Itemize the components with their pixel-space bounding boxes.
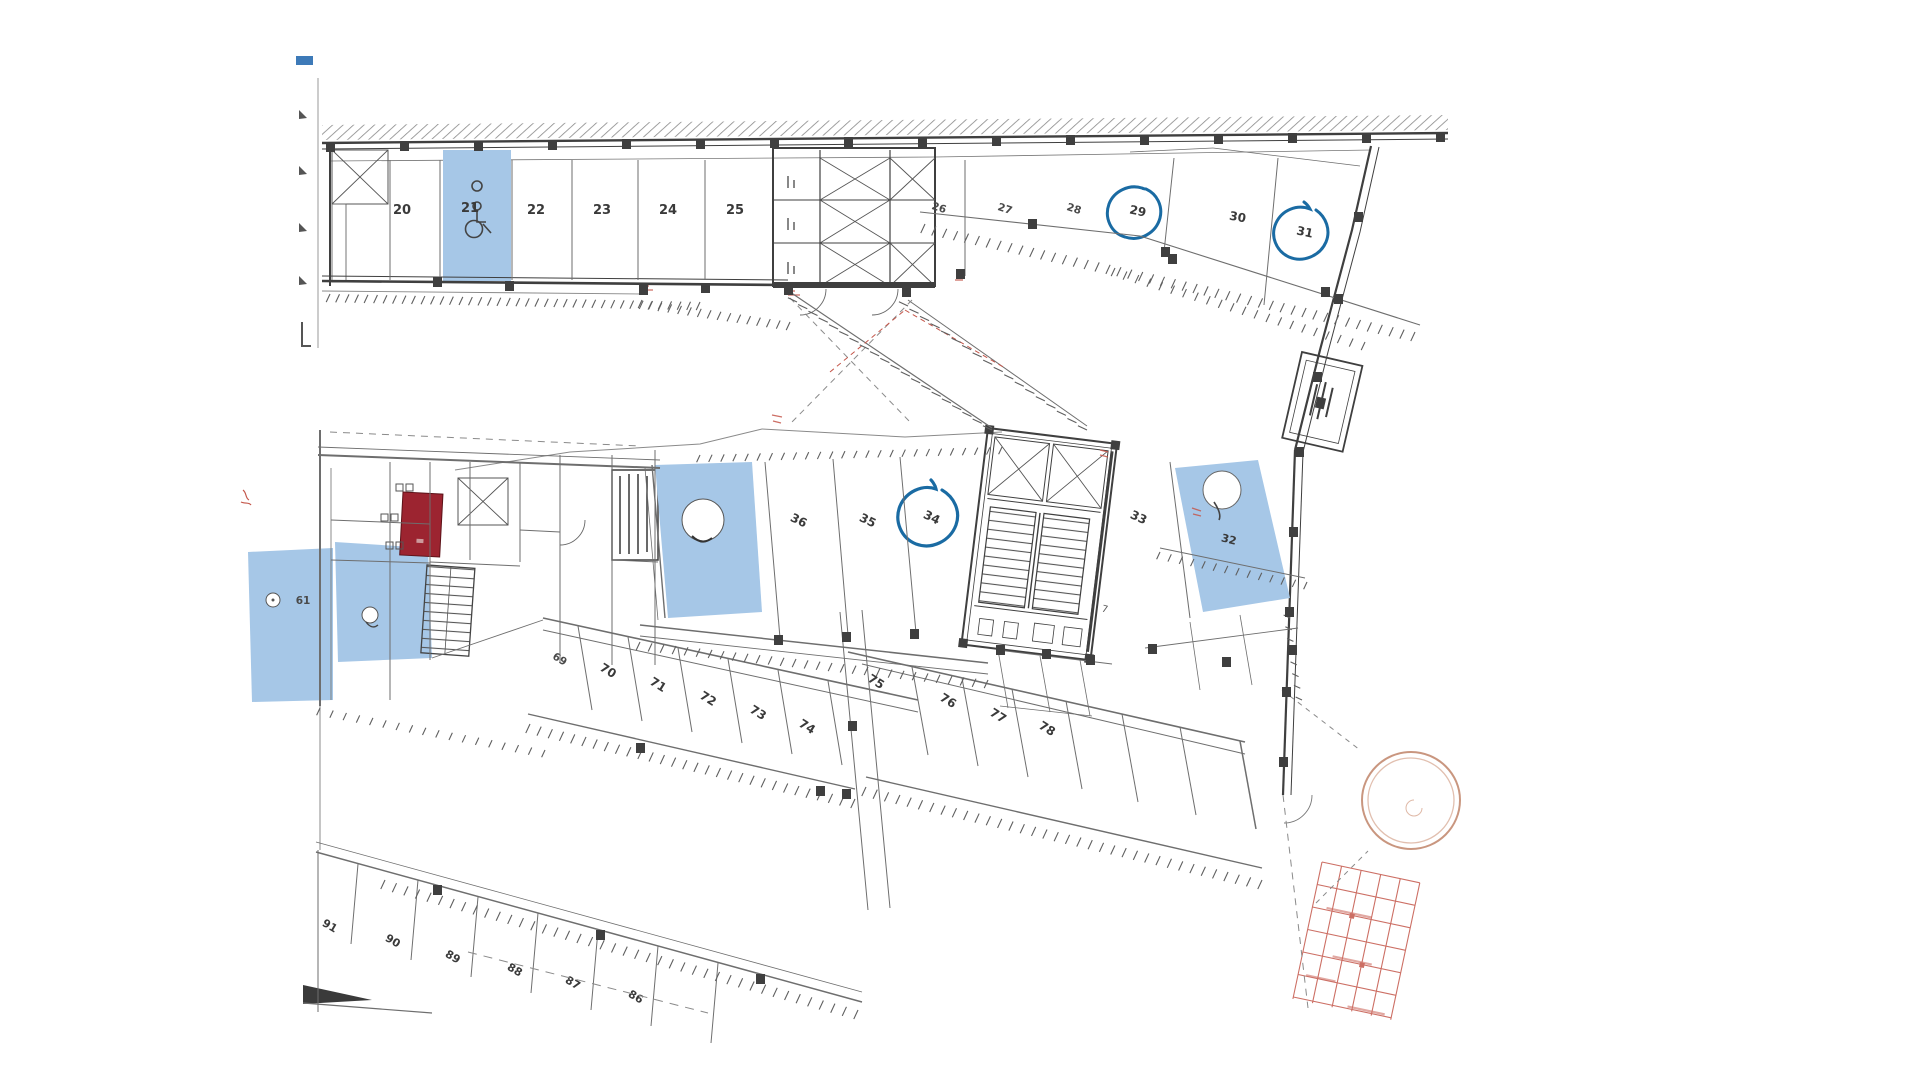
space-label-35: 35 xyxy=(857,510,878,530)
space-label-76: 76 xyxy=(937,690,959,711)
scanned-floor-plan-page: 20 21 22 23 24 25 xyxy=(0,0,1920,1080)
space-label-28: 28 xyxy=(1065,201,1083,217)
floor-plan-drawing: 20 21 22 23 24 25 xyxy=(0,0,1920,1080)
red-highlight-room xyxy=(400,492,443,557)
space-label-21: 21 xyxy=(461,201,479,216)
space-label-36: 36 xyxy=(788,510,809,530)
scan-artifacts xyxy=(296,56,318,348)
door-swing-arc xyxy=(560,520,585,545)
space-label-88: 88 xyxy=(505,961,525,980)
space-label-74: 74 xyxy=(796,716,818,737)
space-label-72: 72 xyxy=(697,688,719,709)
space-label-89: 89 xyxy=(443,948,463,967)
bays-33-32: 33 32 xyxy=(1128,460,1290,612)
space-label-73: 73 xyxy=(747,702,769,723)
fixture-symbol xyxy=(1203,471,1241,509)
left-utility-block: 61 xyxy=(241,470,658,702)
hatched-roof-band xyxy=(322,115,1448,140)
duct-shaft xyxy=(612,470,658,560)
space-label-91: 91 xyxy=(320,917,340,936)
red-site-elements xyxy=(1284,752,1460,1020)
ramp-wedge xyxy=(303,985,372,1004)
space-label-25: 25 xyxy=(726,203,744,218)
lower-left-row: 69 70 71 72 73 74 xyxy=(550,650,818,736)
central-stair-core xyxy=(958,425,1120,664)
margin-tick-marks xyxy=(299,110,307,285)
dashed-layout-lines xyxy=(330,298,1368,1013)
space-label-24: 24 xyxy=(659,203,677,218)
bottom-left-row: 91 90 89 88 87 86 xyxy=(303,917,646,1007)
space-label-23: 23 xyxy=(593,203,611,218)
small-room-label: 7 xyxy=(1100,603,1109,615)
blue-area-61 xyxy=(335,542,432,662)
space-label-29: 29 xyxy=(1128,203,1147,220)
door-swing-arc xyxy=(1284,795,1312,823)
margin-corner-mark xyxy=(302,322,311,346)
space-label-87: 87 xyxy=(563,974,583,993)
space-label-20: 20 xyxy=(393,203,411,218)
upper-right-bays: 26 27 28 29 30 31 xyxy=(930,146,1379,795)
space-label-86: 86 xyxy=(626,988,646,1007)
center-bays: 36 35 34 xyxy=(455,429,1002,618)
space-label-34: 34 xyxy=(921,507,942,527)
space-label-30: 30 xyxy=(1228,209,1247,226)
door-swing-arc xyxy=(872,289,898,315)
slanted-right-wall xyxy=(1295,146,1371,450)
space-label-31: 31 xyxy=(1295,224,1314,241)
fixture-symbol xyxy=(362,607,378,623)
blue-scan-mark xyxy=(296,56,313,65)
space-label-70: 70 xyxy=(597,660,619,681)
space-label-61: 61 xyxy=(296,595,311,607)
red-grid xyxy=(1293,862,1420,1020)
shaft-x-symbols xyxy=(820,158,935,286)
space-label-90: 90 xyxy=(383,932,403,951)
space-label-27: 27 xyxy=(996,201,1014,217)
small-cell-marks xyxy=(788,176,794,274)
space-label-33: 33 xyxy=(1128,508,1149,528)
red-pen-squiggle xyxy=(241,490,251,505)
top-parking-row: 20 21 22 23 24 25 xyxy=(322,147,788,294)
fixture-symbol xyxy=(682,499,724,541)
space-label-78: 78 xyxy=(1036,718,1058,739)
space-label-22: 22 xyxy=(527,203,545,218)
stair-flight xyxy=(421,565,475,656)
wall-cabinet xyxy=(1282,352,1362,452)
space-label-77: 77 xyxy=(987,705,1009,726)
space-label-71: 71 xyxy=(647,674,669,695)
